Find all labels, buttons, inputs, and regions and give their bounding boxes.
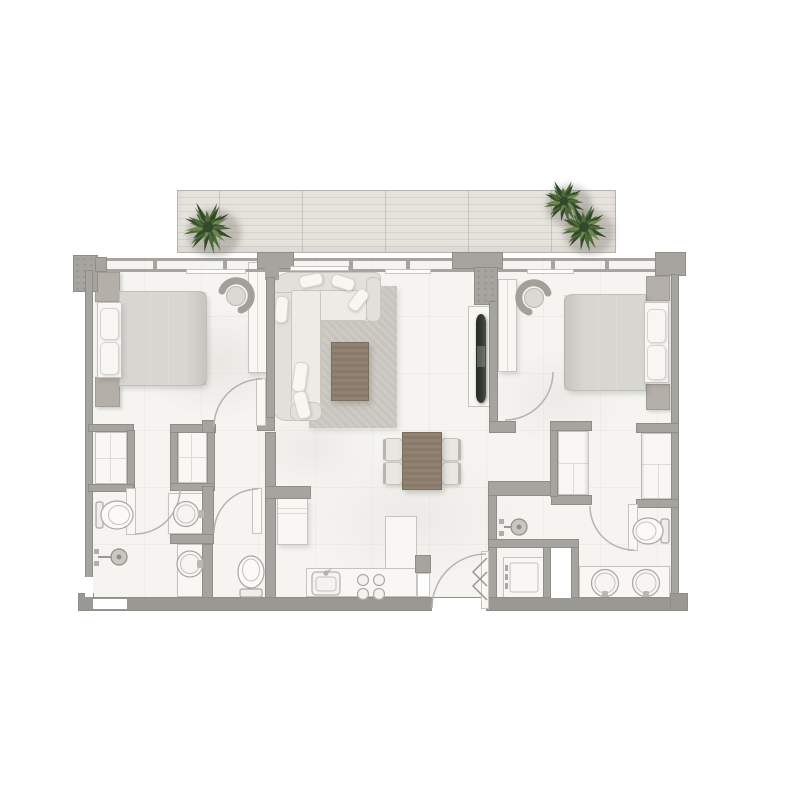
wall-wc-left-side	[202, 544, 213, 598]
wall-bedroom-left-living	[266, 277, 275, 425]
closet-clothes-edge	[584, 432, 588, 494]
bed-right-seam	[616, 295, 617, 390]
bed-left-seam	[168, 292, 169, 385]
door-leaf-bedroom-left	[256, 378, 266, 426]
dining-chair-backrest	[458, 439, 461, 460]
closet-left-b-frame-right	[207, 432, 215, 490]
closet-shelf-line	[573, 464, 574, 494]
exterior-wall-right	[671, 274, 679, 600]
fridge-line	[278, 513, 307, 514]
corner-column-top-right	[655, 252, 686, 276]
wall-wc-left-top	[170, 534, 214, 544]
window-mullion	[153, 258, 157, 272]
closet-right-b	[641, 433, 672, 499]
bed-left-foot-shade	[186, 292, 206, 385]
door-gap	[551, 548, 571, 598]
entry-door-opening	[432, 598, 486, 611]
wall-hall-bath-right-horiz	[488, 481, 553, 496]
door-jamb-bedroom-right	[489, 421, 516, 433]
washing-machine	[503, 557, 544, 598]
window-mullion	[605, 258, 609, 272]
window-sill	[527, 269, 574, 274]
sofa-armrest-right	[366, 277, 381, 322]
bed-pillow	[647, 345, 666, 380]
nightstand	[95, 272, 120, 302]
closet-left-a-frame-right	[127, 430, 135, 492]
wall-gap-right	[571, 547, 579, 598]
wall-niche	[417, 573, 430, 597]
nightstand	[95, 377, 120, 407]
bed-pillow	[100, 308, 119, 340]
bed-left-seam	[150, 292, 151, 385]
bed-pillow	[647, 309, 666, 343]
wall-kitchen-stub	[415, 555, 431, 573]
wardrobe-divider	[257, 263, 258, 372]
wall-kitchen-top	[265, 486, 311, 499]
wall-corridor-kitchen	[265, 432, 276, 598]
fridge-line	[278, 508, 307, 509]
door-leaf-bathroom-left	[126, 488, 136, 535]
corner-column-cap	[95, 257, 107, 272]
dining-table	[402, 432, 442, 490]
sofa-pillow	[274, 296, 289, 324]
dining-chair-backrest	[458, 463, 461, 484]
window-wall-inner-line	[85, 269, 675, 272]
window-sill	[290, 266, 349, 271]
tv-mount	[477, 346, 485, 367]
dining-chair	[383, 438, 403, 461]
dining-chair	[383, 462, 403, 485]
window-mullion	[349, 258, 353, 272]
nightstand	[646, 384, 670, 410]
window-wall-outer-line	[85, 258, 675, 261]
door-leaf-entry	[481, 551, 489, 609]
pillar-column	[474, 267, 498, 305]
bed-right-seam	[598, 295, 599, 390]
kitchen-counter-bottom	[306, 568, 417, 597]
nightstand	[646, 276, 670, 301]
fridge-tall-unit	[277, 498, 308, 545]
exterior-wall-bottom-corner	[670, 593, 688, 611]
wall-niche	[93, 599, 127, 609]
floor-plan-canvas	[0, 0, 800, 800]
closet-left-b-frame-left	[170, 432, 178, 490]
exterior-wall-left	[85, 270, 93, 600]
closet-shelf-line	[179, 457, 206, 458]
bed-right-foot-shade	[564, 295, 584, 390]
wall-laundry-right	[543, 547, 551, 598]
closet-shelf-line	[658, 465, 659, 498]
vanity-counter-left-bottom	[177, 544, 203, 597]
bed-pillow	[100, 342, 119, 375]
pillar-cap	[257, 252, 294, 269]
vanity-counter-right	[579, 566, 670, 598]
coffee-table	[331, 342, 369, 401]
wall-bath-right-jamb-right	[636, 499, 679, 508]
exterior-wall-bottom	[78, 597, 688, 611]
closet-right-a-frame-left	[550, 430, 558, 497]
closet-clothes-edge	[641, 434, 645, 498]
door-leaf-wc-left	[252, 488, 262, 534]
dining-chair-backrest	[383, 439, 386, 460]
wall-living-bedroom-right	[489, 301, 498, 430]
wall-laundry-top	[488, 539, 579, 548]
balcony-deck	[177, 190, 616, 253]
window-sill	[186, 269, 246, 274]
closet-shelf-line	[96, 458, 126, 459]
wall-niche	[85, 577, 93, 597]
closet-shelf-line	[642, 464, 671, 465]
closet-right-b-frame-top	[636, 423, 679, 433]
dresser-divider	[507, 280, 508, 371]
door-leaf-bathroom-right	[628, 504, 638, 551]
vanity-counter-left-top	[168, 493, 204, 534]
dining-chair-backrest	[383, 463, 386, 484]
window-sill	[385, 269, 431, 274]
